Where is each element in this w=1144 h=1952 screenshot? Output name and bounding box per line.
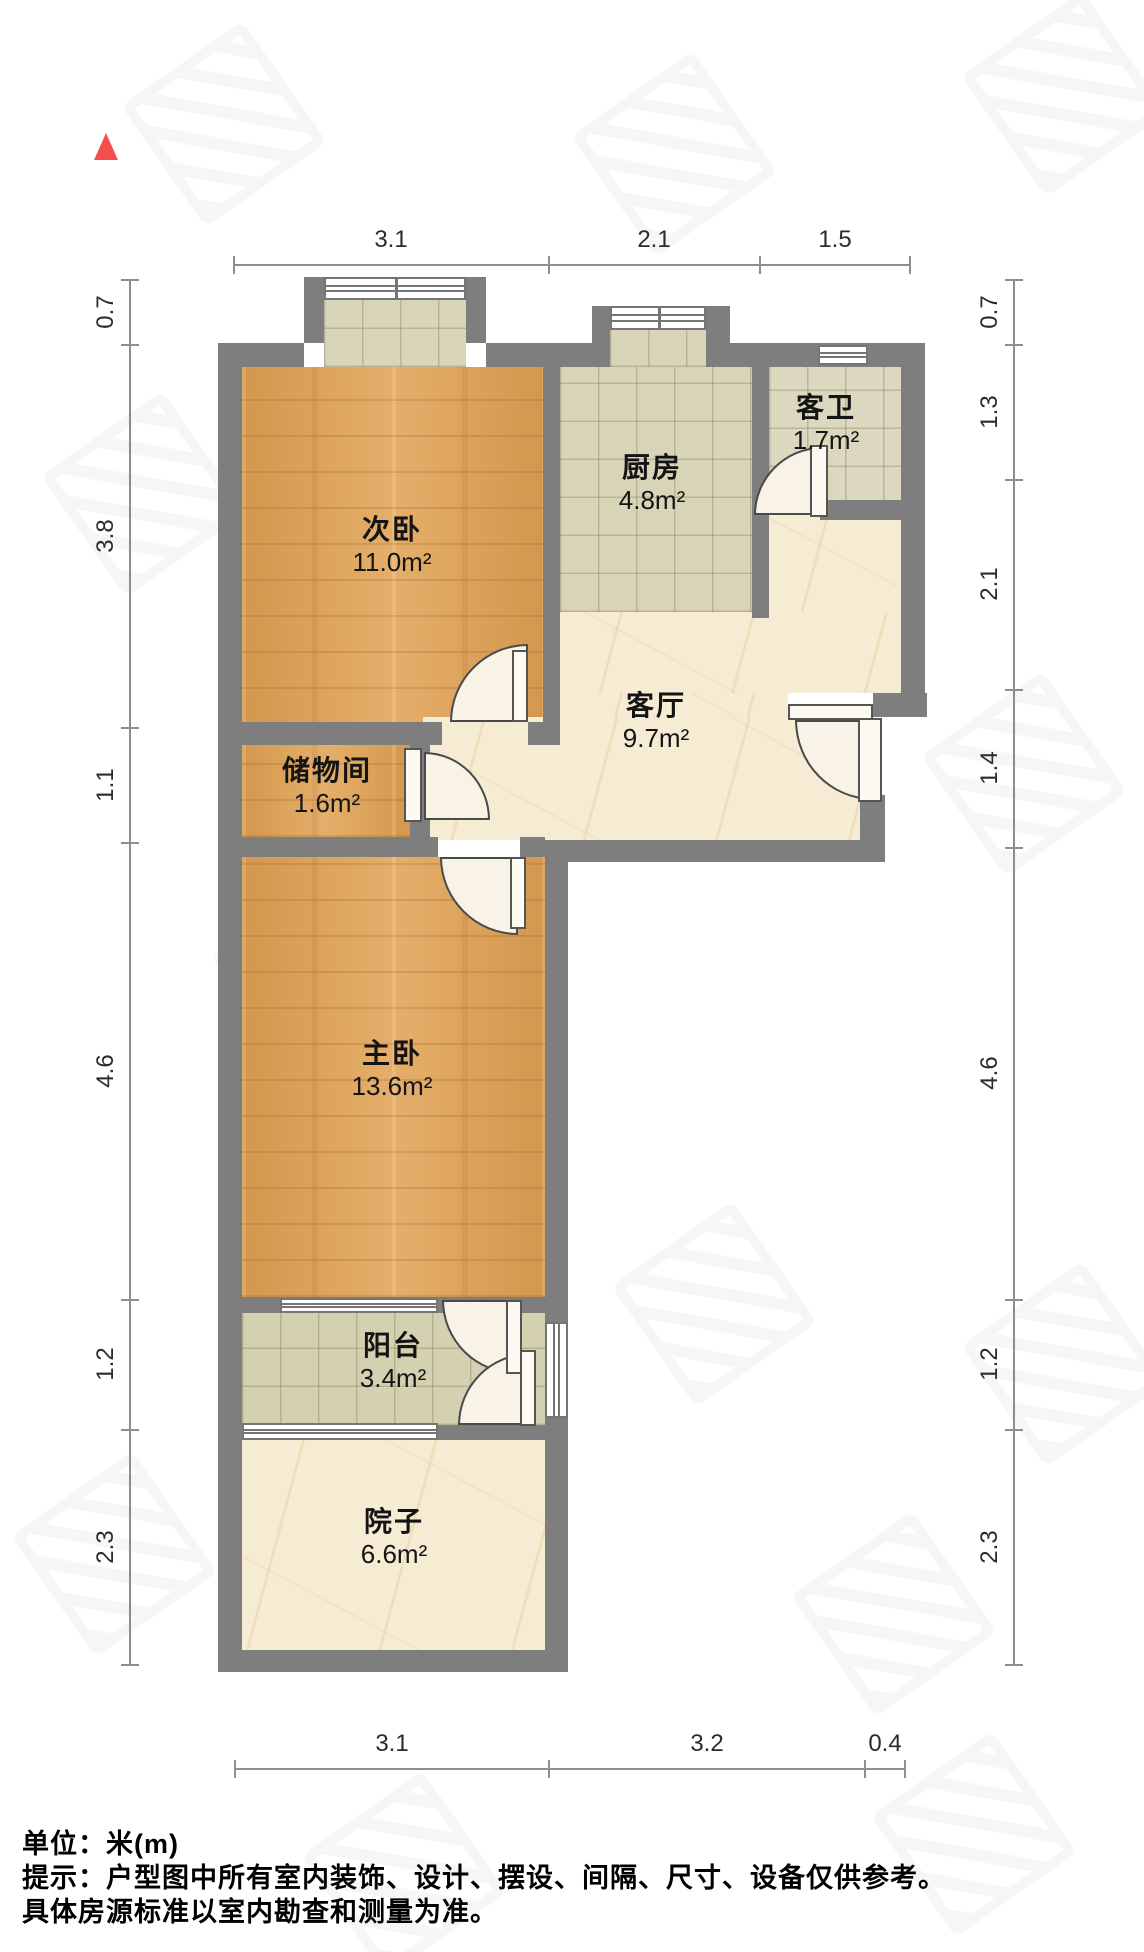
wall — [218, 722, 442, 745]
wall — [901, 343, 925, 693]
dimension-tick — [1005, 279, 1023, 281]
floor-bay-kitchen — [610, 330, 706, 367]
door-yard — [520, 1350, 536, 1426]
wall — [873, 693, 927, 717]
window-guest-bath — [818, 345, 868, 365]
watermark — [11, 1451, 217, 1657]
room-name: 客卫 — [793, 393, 859, 423]
floor-living-room — [560, 612, 901, 693]
dimension-label: 4.6 — [92, 1054, 120, 1087]
dimension-label: 1.2 — [92, 1347, 120, 1380]
watermark — [611, 1201, 817, 1407]
door-guest-bath — [810, 445, 828, 517]
wall — [218, 343, 304, 367]
wall — [304, 277, 324, 343]
dimension-tick — [121, 1664, 139, 1666]
floor-plan: 次卧 11.0m² 厨房 4.8m² 客卫 1.7m² 客厅 9.7m² 储物间… — [0, 0, 1144, 1952]
dimension-label: 0.7 — [976, 295, 1004, 328]
window-balcony-right — [545, 1322, 568, 1418]
room-name: 阳台 — [360, 1331, 426, 1361]
room-label-master-bedroom: 主卧 13.6m² — [352, 1039, 433, 1101]
dimension-label: 4.6 — [976, 1056, 1004, 1089]
watermark — [961, 0, 1144, 197]
wall — [218, 1650, 568, 1672]
wall — [706, 306, 730, 367]
dimension-tick — [1005, 1664, 1023, 1666]
window-balcony-yard — [242, 1423, 438, 1440]
wall — [520, 837, 545, 857]
dimension-tick — [548, 1760, 550, 1778]
room-area: 11.0m² — [353, 547, 432, 577]
north-arrow-icon — [94, 133, 118, 160]
dimension-tick — [1005, 1299, 1023, 1301]
dimension-tick — [864, 1760, 866, 1778]
room-label-secondary-bedroom: 次卧 11.0m² — [353, 515, 432, 577]
window-mullion — [658, 308, 661, 328]
window-master-south — [280, 1298, 438, 1313]
dimension-line-bottom — [235, 1768, 905, 1770]
room-area: 1.7m² — [793, 425, 859, 455]
window-bay-kitchen — [610, 306, 706, 330]
room-name: 客厅 — [623, 691, 689, 721]
room-area: 13.6m² — [352, 1071, 433, 1101]
dimension-tick — [233, 256, 235, 274]
room-area: 9.7m² — [623, 723, 689, 753]
dimension-tick — [121, 727, 139, 729]
dimension-label: 0.4 — [868, 1730, 901, 1758]
dimension-tick — [121, 1299, 139, 1301]
wall — [545, 840, 885, 862]
room-area: 6.6m² — [361, 1539, 427, 1569]
room-label-balcony: 阳台 3.4m² — [360, 1331, 426, 1393]
room-name: 厨房 — [619, 453, 685, 483]
room-area: 3.4m² — [360, 1363, 426, 1393]
floor-bay-secondary-bedroom — [324, 300, 466, 367]
wall — [218, 837, 438, 857]
dimension-tick — [759, 256, 761, 274]
wall — [592, 306, 610, 367]
watermark — [41, 391, 247, 597]
dimension-tick — [121, 842, 139, 844]
wall — [528, 722, 560, 745]
room-name: 储物间 — [282, 756, 372, 786]
dimension-tick — [904, 1760, 906, 1778]
room-area: 1.6m² — [282, 788, 372, 818]
watermark — [921, 671, 1127, 877]
floor-living-room — [769, 505, 901, 612]
room-name: 主卧 — [352, 1039, 433, 1069]
dimension-line-top — [234, 264, 910, 266]
dimension-tick — [1005, 479, 1023, 481]
watermark — [961, 1261, 1144, 1467]
dimension-label: 2.3 — [976, 1530, 1004, 1563]
dimension-label: 3.1 — [375, 1730, 408, 1758]
watermark — [571, 51, 777, 257]
dimension-label: 2.1 — [976, 567, 1004, 600]
dimension-label: 3.2 — [690, 1730, 723, 1758]
dimension-label: 0.7 — [92, 295, 120, 328]
watermark — [791, 1511, 997, 1717]
wall — [545, 857, 568, 1672]
dimension-tick — [909, 256, 911, 274]
wall — [860, 795, 885, 862]
room-label-storage: 储物间 1.6m² — [282, 756, 372, 818]
watermark — [871, 1731, 1077, 1937]
wall — [486, 343, 592, 367]
wall — [466, 277, 486, 343]
watermark — [121, 21, 327, 227]
room-name: 院子 — [361, 1507, 427, 1537]
wall — [218, 343, 242, 1672]
room-label-yard: 院子 6.6m² — [361, 1507, 427, 1569]
dimension-tick — [1005, 344, 1023, 346]
window-mullion — [395, 279, 398, 298]
dimension-tick — [121, 344, 139, 346]
door-secondary-bedroom — [512, 650, 528, 722]
dimension-label: 1.5 — [818, 226, 851, 254]
wall — [543, 343, 560, 722]
dimension-tick — [548, 256, 550, 274]
dimension-tick — [234, 1760, 236, 1778]
room-name: 次卧 — [353, 515, 432, 545]
dimension-tick — [121, 1429, 139, 1431]
entry-door — [858, 718, 882, 802]
dimension-label: 1.1 — [92, 768, 120, 801]
room-label-living-room: 客厅 9.7m² — [623, 691, 689, 753]
dimension-line-right — [1013, 280, 1015, 1665]
dimension-label: 1.3 — [976, 395, 1004, 428]
room-area: 4.8m² — [619, 485, 685, 515]
door-master-bedroom — [510, 857, 526, 929]
window-bay-secondary-bedroom — [324, 277, 466, 300]
dimension-label: 3.1 — [374, 226, 407, 254]
wall — [820, 500, 901, 520]
room-label-guest-bath: 客卫 1.7m² — [793, 393, 859, 455]
room-label-kitchen: 厨房 4.8m² — [619, 453, 685, 515]
door-storage — [404, 748, 422, 822]
dimension-tick — [121, 279, 139, 281]
